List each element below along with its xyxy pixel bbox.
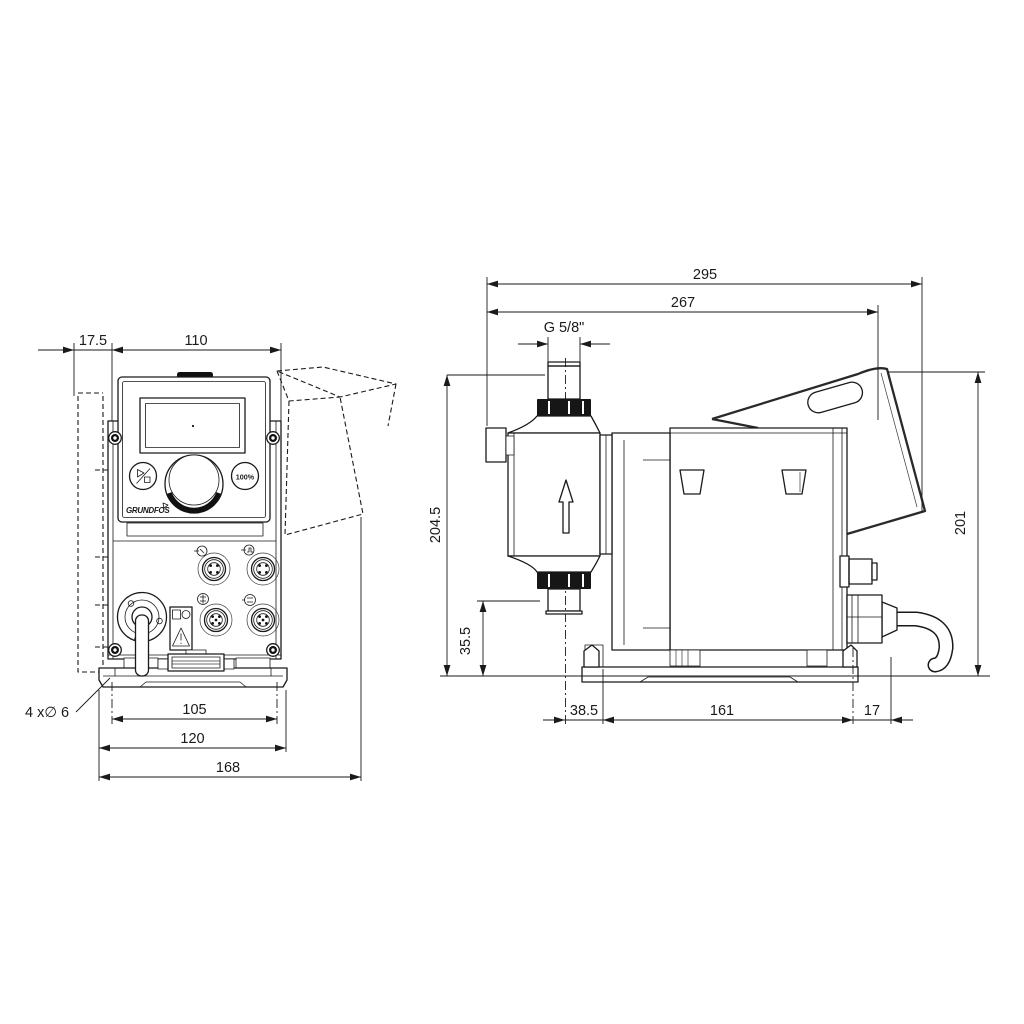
screw-icon (109, 432, 122, 445)
dosing-head (486, 362, 612, 614)
panel-bottom-strip (127, 523, 263, 536)
rear-connections (840, 556, 946, 665)
start-stop-button[interactable] (130, 463, 157, 490)
m12-connector[interactable] (200, 604, 232, 636)
m12-connector[interactable] (247, 553, 279, 585)
screw-icon (267, 432, 280, 445)
m12-connector[interactable] (247, 604, 279, 636)
dimensional-drawing-page: 100% GRUNDFOS (0, 0, 1024, 1024)
wall-mounting-plate (78, 393, 109, 672)
m12-connector[interactable] (198, 553, 230, 585)
power-cable (136, 615, 149, 676)
suction-union-nut (537, 572, 591, 589)
mounting-holes-label: 4 x∅ 6 (25, 705, 69, 721)
front-view: 100% GRUNDFOS (78, 367, 396, 687)
dim-267-label: 267 (671, 295, 695, 311)
dim-161-label: 161 (710, 703, 734, 719)
label-plate (170, 607, 192, 650)
dim-35-5-label: 35.5 (458, 627, 474, 655)
display-cursor-dot (192, 425, 194, 427)
screw-icon (267, 644, 280, 657)
dim-105-label: 105 (182, 702, 206, 718)
display-screen (140, 398, 245, 453)
dim-17-label: 17 (864, 703, 880, 719)
dim-201-label: 201 (953, 511, 969, 535)
rear-threaded-connector (849, 559, 872, 584)
holes-leader-line (76, 678, 110, 712)
cable-clip-tab (680, 470, 704, 494)
button-100-percent[interactable]: 100% (232, 463, 259, 490)
discharge-union-nut (537, 399, 591, 416)
tilted-control-cube-dashed (277, 367, 396, 535)
suction-thread (548, 589, 580, 611)
thread-size-label: G 5/8" (544, 320, 585, 336)
technical-drawing: 100% GRUNDFOS (0, 0, 1024, 1024)
cable-clip-tab (782, 470, 806, 494)
dim-295-label: 295 (693, 267, 717, 283)
screw-icon (109, 644, 122, 657)
dim-110-label: 110 (184, 333, 207, 349)
discharge-thread (548, 366, 580, 399)
control-panel: 100% GRUNDFOS (118, 372, 270, 536)
side-view (486, 358, 946, 724)
motor-housing (670, 428, 847, 650)
dim-120-label: 120 (180, 731, 204, 747)
vent-valve-knob[interactable] (486, 428, 506, 462)
cube-handle-slot (805, 380, 865, 416)
dim-38-5-label: 38.5 (570, 703, 598, 719)
dim-204-5-label: 204.5 (428, 507, 444, 543)
dim-168-label: 168 (216, 760, 240, 776)
dim-17-5-label: 17.5 (79, 333, 107, 349)
button-100-label: 100% (236, 473, 255, 482)
pump-lantern (612, 433, 670, 650)
click-wheel[interactable] (165, 455, 223, 513)
